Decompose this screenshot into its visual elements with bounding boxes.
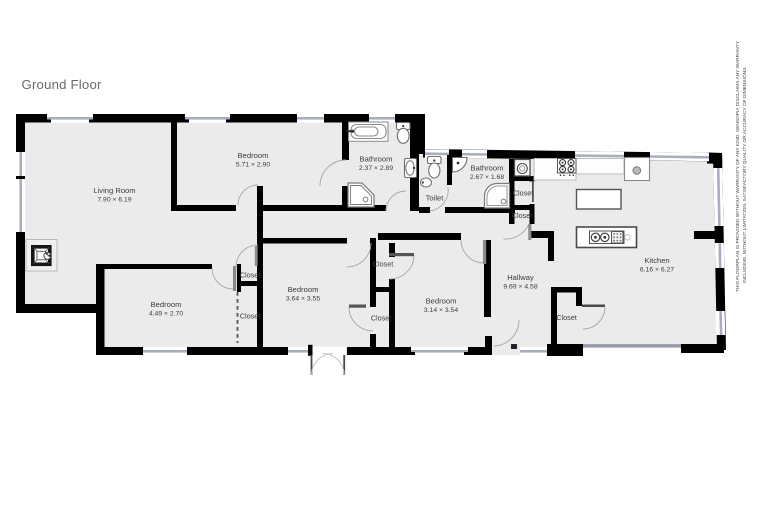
svg-text:Bathroom: Bathroom xyxy=(360,155,393,164)
svg-text:Bedroom: Bedroom xyxy=(238,151,269,160)
svg-text:Closet: Closet xyxy=(240,271,260,280)
svg-text:Ground Floor: Ground Floor xyxy=(22,77,103,92)
svg-text:Bedroom: Bedroom xyxy=(288,285,319,294)
svg-text:Bathroom: Bathroom xyxy=(471,164,504,173)
svg-text:Closet: Closet xyxy=(240,312,260,321)
svg-text:Bedroom: Bedroom xyxy=(426,297,457,306)
svg-text:4.49 × 2.70: 4.49 × 2.70 xyxy=(149,311,183,318)
svg-text:INCLUDING, WITHOUT LIMITATION,: INCLUDING, WITHOUT LIMITATION, SATISFACT… xyxy=(742,66,748,283)
svg-text:Closet: Closet xyxy=(513,189,533,198)
svg-text:6.16 × 6.27: 6.16 × 6.27 xyxy=(640,267,674,274)
svg-text:9.69 × 4.58: 9.69 × 4.58 xyxy=(503,284,537,291)
svg-text:Closet: Closet xyxy=(556,313,576,322)
svg-text:2.67 × 1.68: 2.67 × 1.68 xyxy=(470,174,504,181)
svg-text:THIS FLOORPLAN IS PROVIDED WIT: THIS FLOORPLAN IS PROVIDED WITHOUT WARRA… xyxy=(735,40,741,292)
svg-text:Closet: Closet xyxy=(512,211,532,220)
svg-text:2.37 × 2.89: 2.37 × 2.89 xyxy=(359,165,393,172)
svg-text:3.14 × 3.54: 3.14 × 3.54 xyxy=(424,307,458,314)
svg-text:Toilet: Toilet xyxy=(426,194,445,203)
svg-text:Bedroom: Bedroom xyxy=(151,300,182,309)
svg-text:7.90 × 6.19: 7.90 × 6.19 xyxy=(97,197,131,204)
svg-text:5.71 × 2.90: 5.71 × 2.90 xyxy=(236,162,270,169)
svg-text:Closet: Closet xyxy=(373,260,393,269)
svg-text:3.64 × 3.55: 3.64 × 3.55 xyxy=(286,296,320,303)
svg-text:Kitchen: Kitchen xyxy=(644,256,669,265)
svg-text:Living Room: Living Room xyxy=(93,186,135,195)
svg-text:Closet: Closet xyxy=(371,314,391,323)
svg-text:Hallway: Hallway xyxy=(507,273,534,282)
